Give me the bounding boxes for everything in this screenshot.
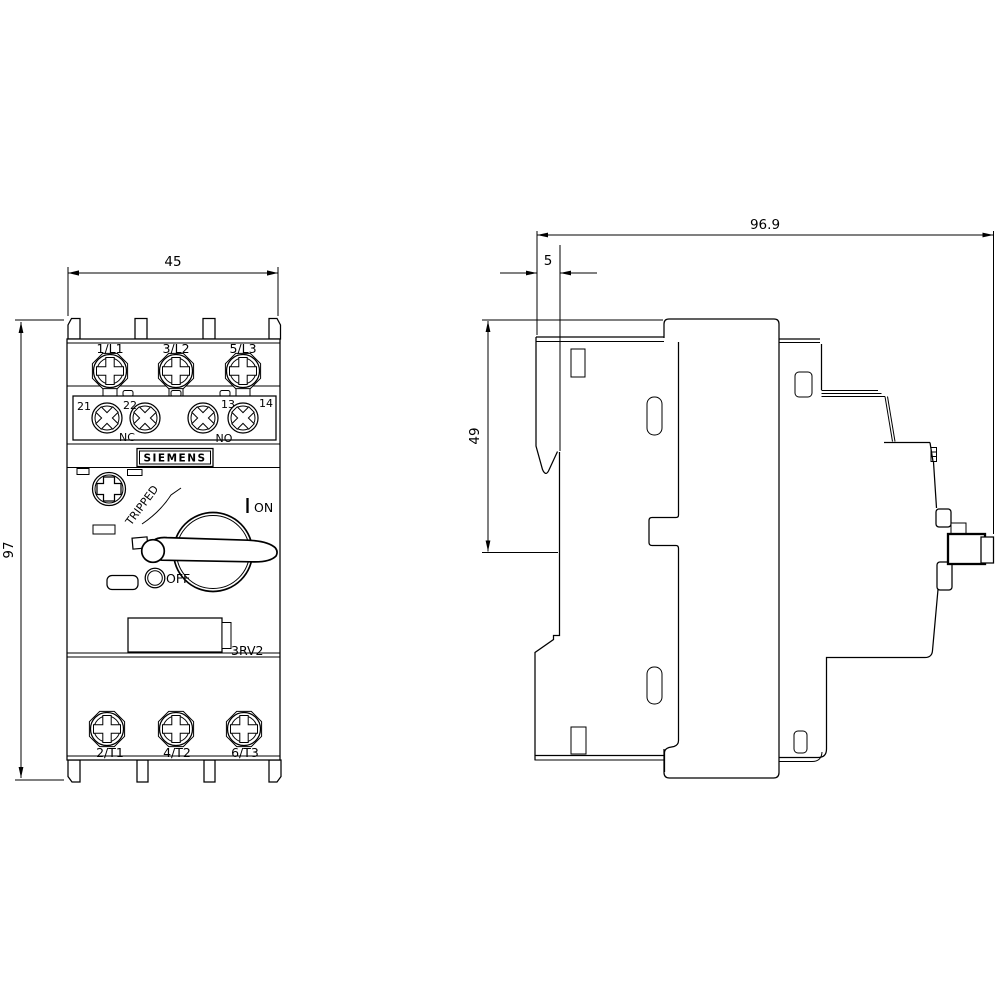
test-button	[107, 576, 138, 590]
technical-drawing-canvas: 1/L1 3/L2 5/L3 21 22 13 14 NC NO SIEMENS	[0, 0, 1000, 1000]
adjustment-dial	[93, 473, 126, 506]
dimension-drawing-page: 1/L1 3/L2 5/L3 21 22 13 14 NC NO SIEMENS	[0, 0, 1000, 1000]
terminal-label-5L3: 5/L3	[229, 341, 256, 356]
handle-shaft-side	[936, 509, 994, 590]
terminal-label-6T3: 6/T3	[231, 745, 259, 760]
side-centre-section	[664, 319, 779, 778]
dim-flange-value: 5	[544, 253, 553, 269]
vent-slot	[571, 349, 585, 377]
din-rail-clip	[536, 337, 558, 473]
shaft-upper-flange	[936, 509, 951, 527]
screw-terminal-4T2	[158, 711, 193, 746]
off-label: OFF	[166, 571, 190, 586]
vent-slot	[647, 397, 662, 435]
screw-terminal-5L3	[225, 353, 260, 388]
side-view	[535, 319, 994, 778]
terminal-label-4T2: 4/T2	[163, 745, 191, 760]
handle-pivot	[142, 540, 165, 563]
brand-text: SIEMENS	[143, 453, 206, 465]
vent-slot	[647, 667, 662, 704]
terminal-label-1L1: 1/L1	[96, 341, 123, 356]
nameplate	[128, 618, 222, 652]
shaft-lower-flange	[937, 562, 952, 590]
siemens-logo: SIEMENS	[137, 449, 213, 467]
dim-depth-value: 96.9	[750, 217, 780, 233]
dim-width-value: 45	[164, 254, 181, 270]
dim-flange: 5	[500, 245, 597, 451]
handle-end-cap	[981, 537, 994, 563]
dim-upper-height-value: 49	[467, 427, 483, 444]
nameplate-step	[222, 623, 231, 649]
aux-label-14: 14	[259, 397, 273, 410]
aux-label-nc: NC	[119, 431, 135, 444]
vent-slot	[794, 731, 807, 753]
mounting-tabs-top	[68, 319, 281, 340]
side-front-block	[779, 339, 938, 762]
handle-grip-side	[948, 534, 985, 564]
aux-label-13: 13	[221, 398, 235, 411]
vent-slot	[571, 727, 586, 754]
indicator-window-right	[128, 470, 143, 476]
front-face-profile	[818, 443, 938, 758]
reset-window	[93, 525, 115, 534]
rotary-handle-lever	[147, 537, 277, 561]
screw-terminal-2T1	[89, 711, 124, 746]
terminal-label-3L2: 3/L2	[162, 341, 189, 356]
screw-terminal-1L1	[92, 353, 127, 388]
aux-label-21: 21	[77, 400, 91, 413]
dim-upper-height: 49	[467, 320, 663, 553]
front-view: 1/L1 3/L2 5/L3 21 22 13 14 NC NO SIEMENS	[67, 319, 281, 783]
screw-terminal-3L2	[158, 353, 193, 388]
terminal-label-2T1: 2/T1	[96, 745, 124, 760]
side-rear-block	[535, 337, 679, 772]
din-rail-channel	[535, 452, 560, 760]
aux-label-no: NO	[216, 432, 233, 445]
dim-width: 45	[68, 254, 278, 316]
dim-depth: 96.9	[537, 217, 994, 534]
vent-slot	[795, 372, 812, 397]
model-label: 3RV2	[231, 643, 263, 658]
aux-label-22: 22	[123, 399, 137, 412]
on-label: ON	[254, 500, 273, 515]
dim-height: 97	[1, 320, 64, 780]
off-position-mark-inner	[148, 571, 163, 586]
dim-height-value: 97	[1, 541, 17, 558]
indicator-window-left	[77, 469, 89, 475]
mounting-tabs-bottom	[68, 760, 281, 782]
screw-terminal-6T3	[226, 711, 261, 746]
